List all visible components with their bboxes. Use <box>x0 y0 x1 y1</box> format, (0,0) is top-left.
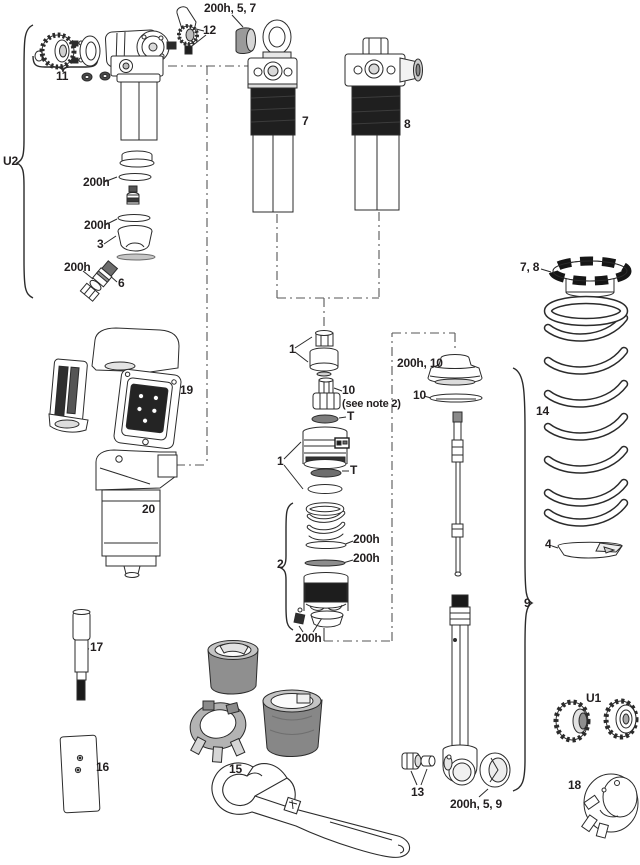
callout-200h-d: 200h <box>353 533 380 546</box>
callout-200h-a: 200h <box>83 176 110 189</box>
callout-t-lower: T <box>350 464 357 477</box>
callout-13: 13 <box>411 786 424 799</box>
air-can-spacer <box>236 28 256 54</box>
callout-7-8: 7, 8 <box>520 261 539 274</box>
connector-lines <box>157 66 455 641</box>
pump-unit-20 <box>96 450 177 578</box>
callout-200h-5-9: 200h, 5, 9 <box>450 798 502 811</box>
callout-18: 18 <box>568 779 581 792</box>
callout-200h-c: 200h <box>64 261 91 274</box>
callout-200h-10: 200h, 10 <box>397 357 443 370</box>
controller-unit-19 <box>92 328 182 449</box>
battery-pack <box>49 359 88 432</box>
callout-3: 3 <box>97 238 103 251</box>
part-11-adjuster-dial <box>35 35 100 67</box>
callout-u1: U1 <box>586 692 601 705</box>
callout-1-lower: 1 <box>277 455 283 468</box>
rebound-stack-2 <box>305 505 346 567</box>
spring-preload-collar <box>553 261 627 297</box>
callout-u2: U2 <box>3 155 18 168</box>
callout-6: 6 <box>118 277 124 290</box>
middle-top-cap-stack <box>303 331 349 494</box>
eyelet-bushing-200h59 <box>480 753 510 787</box>
brace-u2 <box>17 25 33 298</box>
shock-body-8 <box>345 38 423 210</box>
callout-15: 15 <box>229 763 242 776</box>
damper-shaft-9 <box>443 595 477 785</box>
callout-200h-f: 200h <box>295 632 322 645</box>
callout-2: 2 <box>277 558 283 571</box>
callout-20: 20 <box>142 503 155 516</box>
shaft-clamp-tool-17 <box>73 610 90 701</box>
callout-12: 12 <box>203 24 216 37</box>
coil-spring-14 <box>548 300 624 522</box>
callout-200h-b: 200h <box>84 219 111 232</box>
callout-t-upper: T <box>347 410 354 423</box>
callout-14: 14 <box>536 405 549 418</box>
spacer-washer-10 <box>430 394 482 402</box>
bushing-tool-sleeve-a <box>208 641 258 695</box>
callout-10-mid: 10 <box>342 384 355 397</box>
callout-10-right: 10 <box>413 389 426 402</box>
brace-9 <box>513 368 532 791</box>
rebound-needle <box>452 412 463 576</box>
flanged-nut-18 <box>582 774 638 838</box>
callout-8: 8 <box>404 118 410 131</box>
remote-lever-12 <box>177 7 197 54</box>
block-16 <box>60 735 100 813</box>
u1-bushing-pair <box>556 701 636 740</box>
callout-200h-e: 200h <box>353 552 380 565</box>
callout-200h-5-7: 200h, 5, 7 <box>204 2 256 15</box>
mounting-hardware-13 <box>402 753 435 769</box>
shock-body-7 <box>248 20 297 212</box>
bushing-tool-sleeve-b <box>263 690 322 757</box>
callout-4: 4 <box>545 538 551 551</box>
callout-9: 9 <box>524 597 530 610</box>
callout-17: 17 <box>90 641 103 654</box>
callout-19: 19 <box>180 384 193 397</box>
callout-7: 7 <box>302 115 308 128</box>
callout-1-top: 1 <box>289 343 295 356</box>
diagram-artwork <box>0 0 640 865</box>
callout-11: 11 <box>56 70 68 83</box>
spring-seat-4 <box>558 542 622 558</box>
parts-diagram-page: 200h, 5, 7 12 11 U2 200h 200h 3 200h 6 7… <box>0 0 640 865</box>
bushing-tool-castle-ring <box>186 698 250 763</box>
shock-wrench-15 <box>212 763 410 857</box>
callout-16: 16 <box>96 761 109 774</box>
